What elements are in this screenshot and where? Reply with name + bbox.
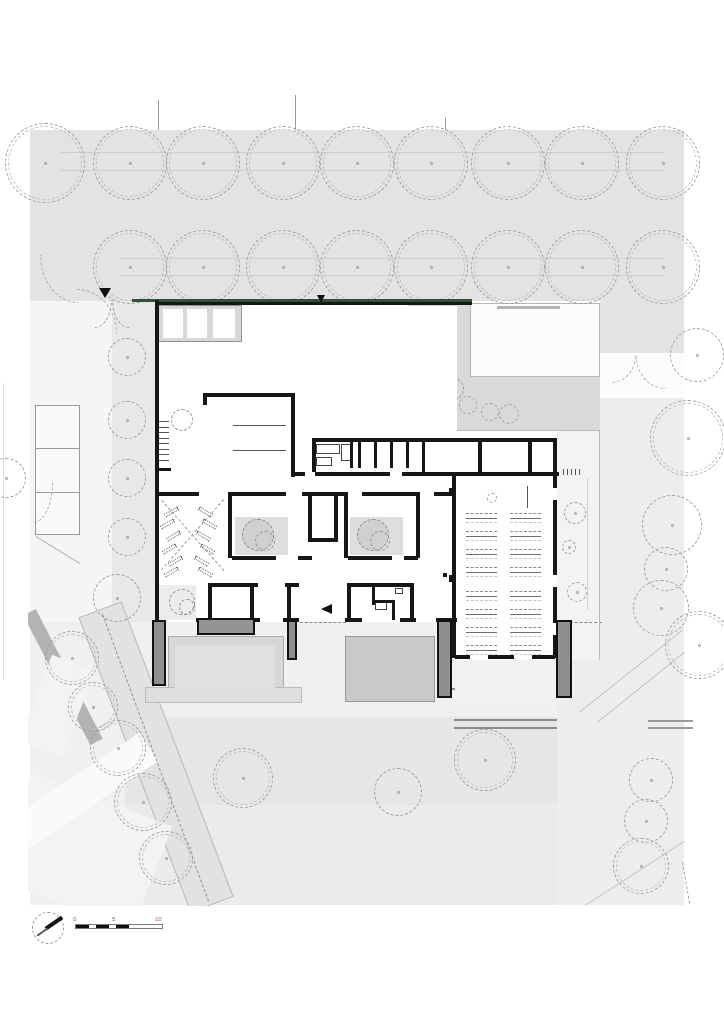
window-pane (187, 309, 207, 338)
street-tree (545, 230, 619, 304)
door-gap (514, 655, 532, 659)
plaza-bench-2 (454, 727, 557, 729)
plaza-tree-center-dot (242, 777, 245, 780)
page-edge-line (3, 383, 4, 680)
wall (155, 300, 159, 622)
strip-tree-center-dot (116, 597, 119, 600)
hall-seat-dots (466, 627, 497, 628)
wall (308, 538, 338, 542)
hall-seat-dots (466, 591, 497, 592)
hall-seat-dots (510, 531, 541, 532)
lawn-tree-ring (668, 614, 724, 676)
lawn-tree (650, 400, 724, 476)
hall-table-line (510, 518, 541, 519)
entry-tick-1 (563, 469, 564, 475)
terrace-bush (562, 540, 576, 554)
wc-fixture (375, 602, 387, 610)
retaining-gray-line (497, 306, 560, 309)
street-tree (320, 230, 394, 304)
lawn-tree-center-dot (687, 437, 690, 440)
entrance-arrow-down (317, 295, 325, 303)
canopy-dash-west (300, 622, 346, 623)
podium-circle (487, 493, 497, 503)
hall-table-line (466, 518, 497, 519)
hall-seat-dots (510, 558, 541, 559)
wall (392, 600, 395, 620)
wall (334, 492, 338, 542)
column-dot (443, 573, 447, 577)
hall-table-line (466, 650, 497, 651)
wall (203, 393, 207, 405)
facade-pillar (152, 620, 166, 686)
hall-seat-dots (466, 600, 497, 601)
scale-bar-seg (116, 925, 129, 928)
wall (553, 438, 557, 476)
cloak-shelf-2 (233, 450, 286, 451)
lawn-tree-center-dot (696, 354, 699, 357)
street-tree (320, 126, 394, 200)
plaza-tree-center-dot (484, 759, 487, 762)
hall-seat-dots (510, 513, 541, 514)
wall (404, 556, 418, 560)
window-pane (213, 309, 235, 338)
hall-seat-dots (466, 567, 497, 568)
window-pane (163, 309, 183, 338)
street-tree-center-dot (202, 162, 205, 165)
wall (287, 583, 291, 620)
scale-label-5: 5 (112, 916, 115, 922)
scale-label-0: 0 (73, 916, 76, 922)
hall-table-line (510, 650, 541, 651)
facade-pillar (556, 620, 572, 698)
plaza-bench-1 (454, 719, 557, 721)
hall-apron (455, 660, 558, 705)
lawn-tree-center-dot (665, 568, 668, 571)
street-tree (471, 126, 545, 200)
wall (358, 440, 361, 468)
street-tree (166, 126, 240, 200)
street-tree-center-dot (129, 266, 132, 269)
street-tree-center-dot (282, 266, 285, 269)
scale-bar-seg (96, 925, 109, 928)
terrace-bush (567, 582, 587, 602)
wc-fixture (395, 588, 403, 594)
round-table-inner (179, 599, 195, 615)
street-tree-center-dot (662, 266, 665, 269)
entry-tick-2 (567, 469, 568, 475)
hall-seat-dots (510, 600, 541, 601)
street-tree-center-dot (430, 162, 433, 165)
street-tree-center-dot (662, 162, 665, 165)
lawn-tree (670, 328, 724, 382)
wall (347, 583, 413, 587)
podium-line (527, 486, 528, 508)
center-terrace (345, 636, 435, 702)
hall-table-line (466, 632, 497, 633)
door-gap (470, 655, 488, 659)
road-tree-center-dot (92, 706, 95, 709)
hall-seat-dots (510, 522, 541, 523)
lawn-tree-center-dot (660, 607, 663, 610)
plaza-bench-4 (648, 727, 693, 729)
plaza-bench-3 (648, 720, 693, 722)
architectural-site-plan-canvas: 0510 (0, 0, 724, 1024)
hall-table-line (466, 554, 497, 555)
hall-seat-dots (510, 636, 541, 637)
door-gap (305, 472, 315, 476)
hall-seat-dots (466, 609, 497, 610)
hall-table-line (510, 572, 541, 573)
strip-tree-center-dot (126, 356, 129, 359)
street-tree (166, 230, 240, 304)
wall (228, 492, 232, 558)
lawn-tree (613, 838, 669, 894)
wall (452, 474, 456, 658)
hall-seat-dots (466, 522, 497, 523)
street-tree (394, 126, 468, 200)
street-tree (545, 126, 619, 200)
door-gap (553, 488, 557, 500)
street-tree-center-dot (430, 266, 433, 269)
entry-bench-bar (197, 618, 255, 635)
hall-seat-dots (510, 591, 541, 592)
wall (406, 440, 409, 468)
lawn-tree (642, 495, 702, 555)
road-tree-center-dot (117, 747, 120, 750)
wall (375, 600, 393, 603)
hall-table-line (466, 572, 497, 573)
hall-table-line (510, 614, 541, 615)
wall (410, 583, 414, 620)
neighbor-plot-line-1 (35, 448, 80, 449)
courtyard-bush (459, 396, 477, 414)
terrace-bush-center-dot (576, 591, 579, 594)
hall-seat-dots (510, 567, 541, 568)
entry-tick-3 (571, 469, 572, 475)
wall (312, 438, 316, 476)
left-terrace-step (145, 687, 302, 703)
street-tree (626, 230, 700, 304)
lawn-tree-center-dot (698, 644, 701, 647)
wall (298, 556, 312, 560)
scale-bar-seg (76, 925, 89, 928)
wall (455, 472, 559, 476)
wall (232, 556, 276, 560)
wall (157, 468, 171, 471)
street-tree-center-dot (507, 266, 510, 269)
street-tree (246, 230, 320, 304)
hall-seat-dots (510, 576, 541, 577)
door-gap (390, 472, 402, 476)
terrace-bush-center-dot (574, 512, 577, 515)
street-tree (626, 126, 700, 200)
lawn-tree (624, 799, 668, 843)
strip-tree (108, 401, 146, 439)
lawn-tree-center-dot (640, 865, 643, 868)
hall-seat-dots (510, 549, 541, 550)
hall-seat-dots (466, 540, 497, 541)
plaza-tree (374, 768, 422, 816)
kitchen-unit (316, 457, 332, 466)
street-tree-center-dot (282, 162, 285, 165)
street-tree-center-dot (581, 266, 584, 269)
hall-seat-dots (466, 513, 497, 514)
terrace-bush (564, 502, 586, 524)
hall-table-line (466, 536, 497, 537)
wall-jamb (449, 575, 456, 582)
hall-table-line (510, 596, 541, 597)
road-tree-center-dot (142, 801, 145, 804)
road-tree (90, 720, 146, 776)
facade-pillar (287, 620, 297, 660)
lawn-tree-center-dot (671, 524, 674, 527)
hall-seat-dots (466, 636, 497, 637)
hall-seat-dots (510, 540, 541, 541)
terrace-mid-line (587, 478, 588, 610)
wall (208, 583, 212, 620)
utility-tick-1 (158, 100, 159, 130)
terrace-bush-center-dot (568, 546, 571, 549)
wall (157, 492, 199, 496)
wall (528, 440, 532, 474)
strip-tree (93, 574, 141, 622)
road-tree (139, 831, 193, 885)
street-tree-center-dot (507, 162, 510, 165)
wall (291, 395, 295, 477)
wall (390, 440, 393, 468)
entrance-arrow-left (321, 604, 332, 614)
hall-table-line (510, 632, 541, 633)
street-tree (394, 230, 468, 304)
round-table-inner (255, 531, 275, 551)
hall-seat-dots (510, 609, 541, 610)
street-tree-center-dot (581, 162, 584, 165)
lawn-tree-center-dot (650, 779, 653, 782)
wall (478, 440, 482, 474)
left-edge-tree-center-dot (5, 477, 8, 480)
plaza-tree (454, 729, 516, 791)
wall (400, 618, 416, 622)
scale-label-10: 10 (155, 916, 162, 922)
courtyard-bush (499, 404, 519, 424)
hall-table-line (466, 596, 497, 597)
wall (308, 492, 312, 542)
wall (157, 302, 472, 305)
strip-tree-center-dot (126, 477, 129, 480)
street-tree-center-dot (44, 162, 47, 165)
hall-seat-dots (510, 618, 541, 619)
hall-seat-dots (466, 531, 497, 532)
utility-tick-2 (295, 95, 296, 130)
street-tree (246, 126, 320, 200)
plaza-tree-center-dot (397, 791, 400, 794)
wall (312, 438, 557, 442)
wall-jamb (449, 488, 456, 495)
plaza-tree (213, 748, 273, 808)
entry-tick-5 (579, 469, 580, 475)
terrace-edge-line (599, 430, 600, 660)
wall (347, 583, 351, 620)
street-tree (471, 230, 545, 304)
street-tree-center-dot (129, 162, 132, 165)
wall (350, 440, 353, 468)
hall-table-line (466, 614, 497, 615)
street-tree (5, 123, 85, 203)
strip-tree (108, 518, 146, 556)
wall (374, 440, 377, 468)
road-tree (114, 773, 172, 831)
wall (293, 472, 459, 476)
hall-table-line (510, 536, 541, 537)
door-gap (553, 575, 557, 587)
wall (250, 583, 254, 620)
entry-tick-4 (575, 469, 576, 475)
wall (203, 393, 295, 397)
lawn-tree (665, 611, 724, 679)
hall-seat-dots (466, 549, 497, 550)
lawn-tree-center-dot (645, 820, 648, 823)
road-tree-center-dot (165, 857, 168, 860)
facade-pillar (437, 620, 452, 698)
cloak-shelf-1 (233, 425, 286, 426)
left-terrace-inner (175, 645, 275, 689)
round-table-inner (370, 531, 390, 551)
strip-tree (108, 338, 146, 376)
street-tree-center-dot (356, 266, 359, 269)
strip-tree (108, 459, 146, 497)
hall-seat-dots (510, 627, 541, 628)
courtyard-bush (481, 403, 499, 421)
road-tree-center-dot (71, 657, 74, 660)
street-tree-center-dot (356, 162, 359, 165)
wall (362, 492, 420, 496)
street-tree-center-dot (202, 266, 205, 269)
wall (228, 492, 286, 496)
hall-seat-dots (466, 618, 497, 619)
hall-seat-dots (466, 576, 497, 577)
playground-hatch (470, 303, 600, 377)
hall-seat-dots (466, 558, 497, 559)
wall (348, 556, 392, 560)
strip-tree-center-dot (126, 419, 129, 422)
hall-seat-dots (466, 645, 497, 646)
left-edge-tree (0, 458, 26, 498)
kitchen-counter (316, 444, 340, 454)
strip-tree-center-dot (126, 536, 129, 539)
hall-table-line (510, 554, 541, 555)
street-tree (93, 126, 167, 200)
wall (416, 492, 420, 558)
lawn-tree (629, 758, 673, 802)
entry-rug (171, 409, 193, 431)
hall-seat-dots (510, 645, 541, 646)
wall (422, 440, 425, 474)
wall (344, 492, 348, 558)
road-tree (45, 631, 99, 685)
wall (345, 618, 362, 622)
entrance-arrow-down (99, 288, 111, 298)
